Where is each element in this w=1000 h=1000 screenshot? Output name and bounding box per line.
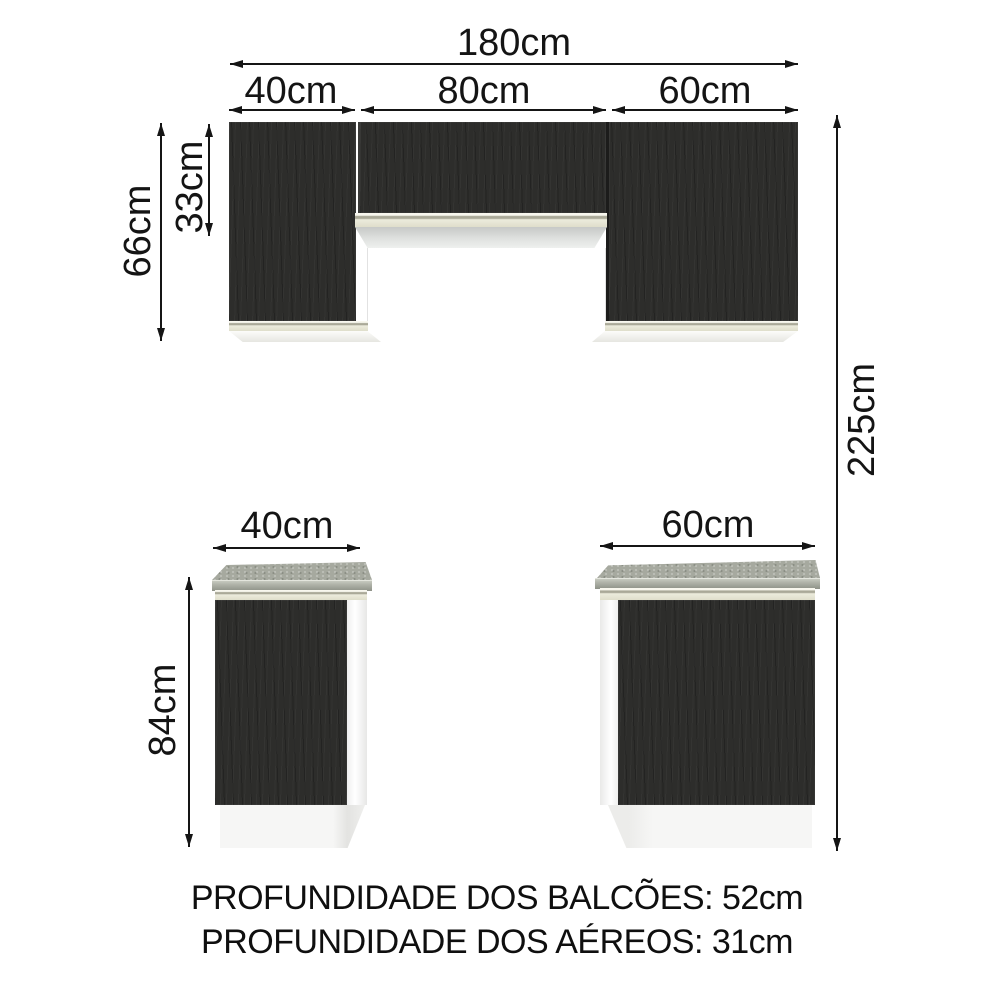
opening-left-panel-edge xyxy=(367,248,368,321)
wall-cabinet-right-foot xyxy=(592,331,798,342)
base-cabinet-right-countertop xyxy=(597,560,820,578)
wall-cabinet-middle-underside xyxy=(355,227,607,248)
base-cabinet-right-top-trim xyxy=(600,588,815,600)
dim-label-upper-left-width: 40cm xyxy=(245,72,338,110)
dim-label-base-height: 84cm xyxy=(144,664,182,757)
dim-label-base-left-width: 40cm xyxy=(241,507,334,545)
base-cabinet-left-top-trim xyxy=(215,590,367,600)
base-cabinet-left-side-panel xyxy=(347,600,367,805)
dim-label-upper-full-height: 66cm xyxy=(119,185,157,278)
dim-arrow-upper-full-height xyxy=(160,123,162,341)
base-cabinet-left-door xyxy=(215,600,347,805)
wall-cabinet-middle-bottom-trim xyxy=(355,213,607,227)
dim-arrow-total-height xyxy=(836,115,838,851)
wall-cabinet-right-bottom-trim xyxy=(605,321,798,331)
dim-arrow-upper-middle-width xyxy=(361,109,606,111)
dim-arrow-total-width xyxy=(230,63,798,65)
wall-cabinet-left-door xyxy=(229,122,356,321)
dim-arrow-upper-middle-height xyxy=(208,124,210,236)
wall-cabinet-left-foot xyxy=(229,331,381,342)
base-cabinet-right-plinth xyxy=(608,805,812,848)
base-cabinet-right-door xyxy=(618,600,815,805)
dim-label-upper-right-width: 60cm xyxy=(659,72,752,110)
dim-arrow-base-height xyxy=(188,577,190,847)
dim-arrow-upper-left-width xyxy=(229,109,355,111)
wall-cabinet-middle-door xyxy=(358,122,606,213)
opening-right-panel-edge xyxy=(605,248,606,321)
dim-label-upper-middle-height: 33cm xyxy=(171,141,209,234)
base-cabinet-left xyxy=(205,560,375,850)
base-cabinet-right xyxy=(595,558,820,850)
footer-wall-cabinets-depth: PROFUNDIDADE DOS AÉREOS: 31cm xyxy=(201,923,793,962)
base-cabinet-left-plinth xyxy=(220,805,365,848)
dim-label-base-right-width: 60cm xyxy=(662,506,755,544)
dim-label-total-width: 180cm xyxy=(457,24,571,62)
dim-label-total-height: 225cm xyxy=(843,363,881,477)
base-cabinet-left-countertop xyxy=(212,562,372,580)
kitchen-dimension-diagram: 180cm 40cm 80cm 60cm 66cm 33cm 225cm 40c… xyxy=(0,0,1000,1000)
footer-counters-depth: PROFUNDIDADE DOS BALCÕES: 52cm xyxy=(191,879,803,918)
wall-cabinet-left-bottom-trim xyxy=(229,321,368,331)
dim-arrow-base-right-width xyxy=(600,545,815,547)
dim-arrow-base-left-width xyxy=(213,547,360,549)
wall-cabinet-right-door xyxy=(606,122,798,321)
dim-arrow-upper-right-width xyxy=(612,109,798,111)
dim-label-upper-middle-width: 80cm xyxy=(438,72,531,110)
base-cabinet-right-side-panel xyxy=(600,600,618,805)
wall-cabinet-assembly xyxy=(229,122,798,342)
